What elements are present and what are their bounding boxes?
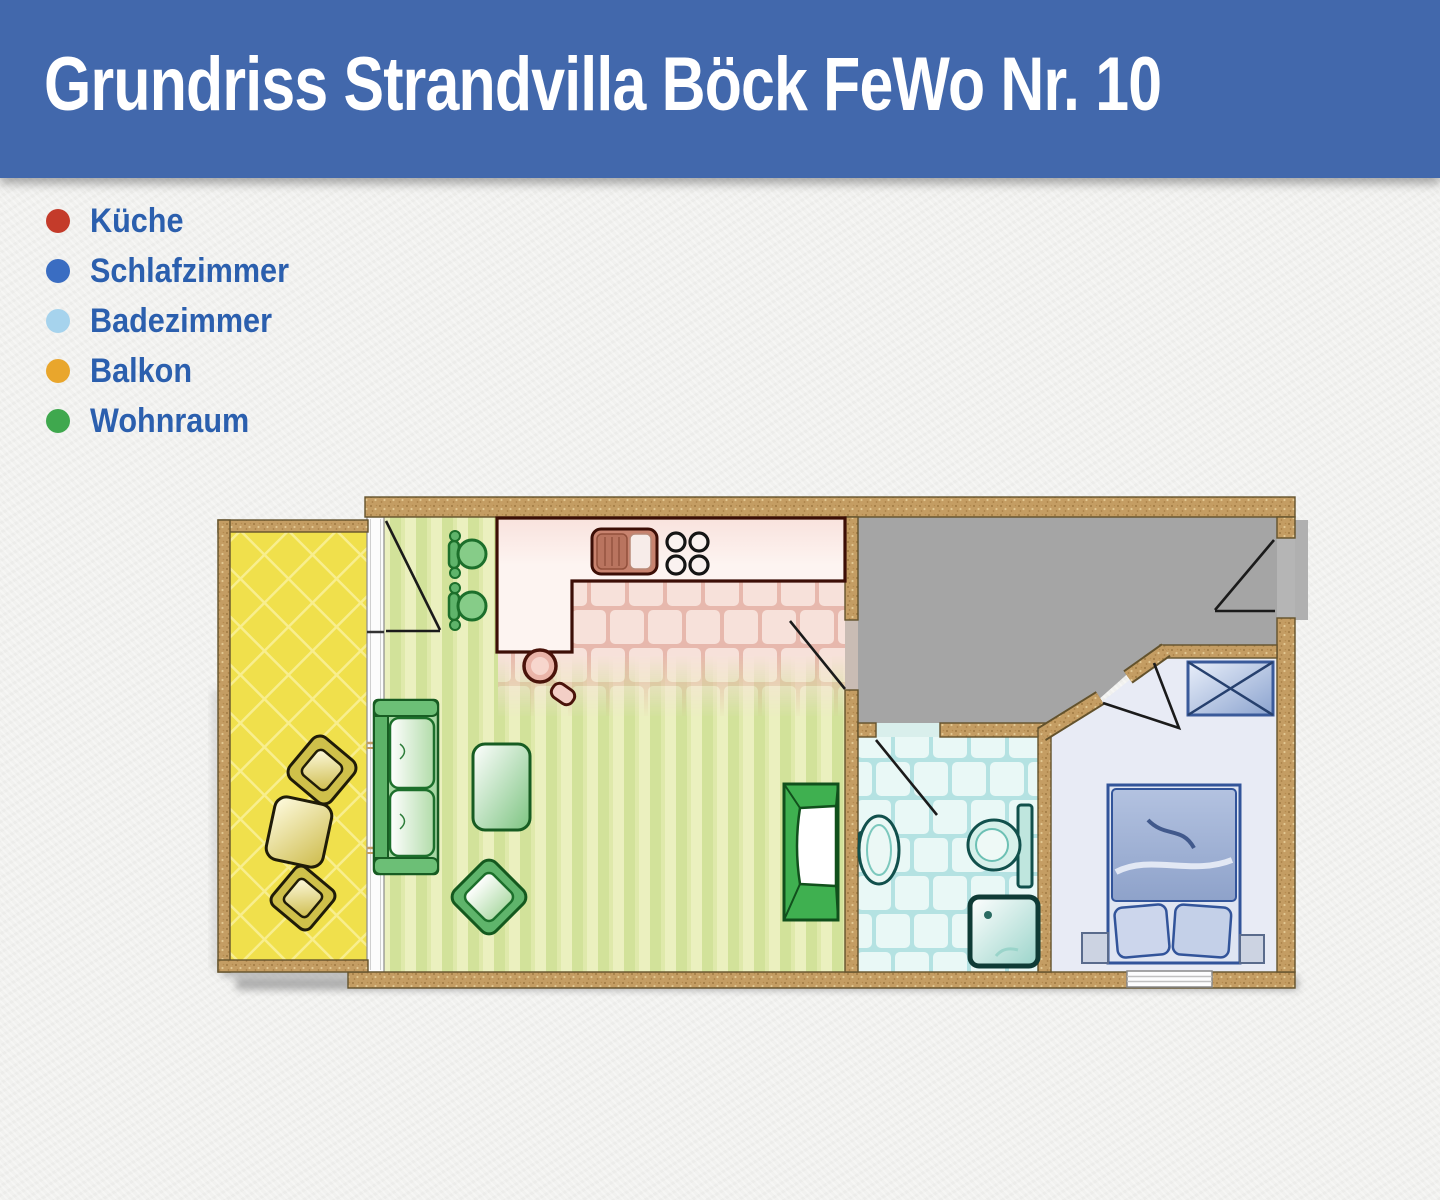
bedroom-window [1127, 971, 1212, 987]
legend-item-bedroom: Schlafzimmer [46, 246, 311, 296]
bathroom-door-threshold [876, 723, 940, 737]
bathroom-color-dot-icon [46, 309, 70, 333]
entry-threshold [1277, 538, 1295, 618]
balcony-wall-left [218, 520, 230, 972]
legend: Küche Schlafzimmer Badezimmer Balkon Woh… [46, 196, 311, 446]
legend-item-bathroom: Badezimmer [46, 296, 311, 346]
nightstand [1240, 935, 1264, 963]
kitchen-color-dot-icon [46, 209, 70, 233]
kitchen-door-threshold [845, 620, 858, 690]
living-room-color-dot-icon [46, 409, 70, 433]
legend-item-balcony: Balkon [46, 346, 311, 396]
page: { "banner": { "title": "Grundriss Strand… [0, 0, 1440, 1200]
legend-label: Balkon [90, 352, 192, 391]
living-bath-wall [845, 690, 858, 972]
nightstand [1082, 933, 1108, 963]
legend-item-living-room: Wohnraum [46, 396, 311, 446]
sofa [374, 700, 438, 874]
double-bed [1108, 785, 1240, 963]
legend-label: Schlafzimmer [90, 252, 289, 291]
sun-lounger-cushion [264, 795, 334, 870]
bath-top-wall [940, 723, 1051, 737]
floor-plan [190, 480, 1330, 1025]
legend-label: Wohnraum [90, 402, 249, 441]
balcony-color-dot-icon [46, 359, 70, 383]
balcony-wall-top [218, 520, 368, 532]
bath-wall-stub [858, 723, 876, 737]
kitchen-hall-wall [845, 517, 858, 620]
legend-label: Küche [90, 202, 184, 241]
tv-cabinet [784, 784, 838, 920]
wall-right-upper [1277, 517, 1295, 538]
title-banner: Grundriss Strandvilla Böck FeWo Nr. 10 [0, 0, 1440, 178]
legend-item-kitchen: Küche [46, 196, 311, 246]
wall-top [365, 497, 1295, 517]
legend-label: Badezimmer [90, 302, 272, 341]
wall-right-lower [1277, 618, 1295, 972]
shower [970, 897, 1038, 966]
wardrobe [1188, 662, 1273, 715]
bath-sink [859, 816, 899, 884]
hall-bedroom-wall [1160, 645, 1277, 658]
page-title: Grundriss Strandvilla Böck FeWo Nr. 10 [44, 41, 1161, 128]
entry-landing [1295, 520, 1308, 620]
coffee-table [473, 744, 530, 830]
balcony-wall-bottom [218, 960, 368, 972]
bedroom-color-dot-icon [46, 259, 70, 283]
kitchen-sink [592, 529, 657, 574]
